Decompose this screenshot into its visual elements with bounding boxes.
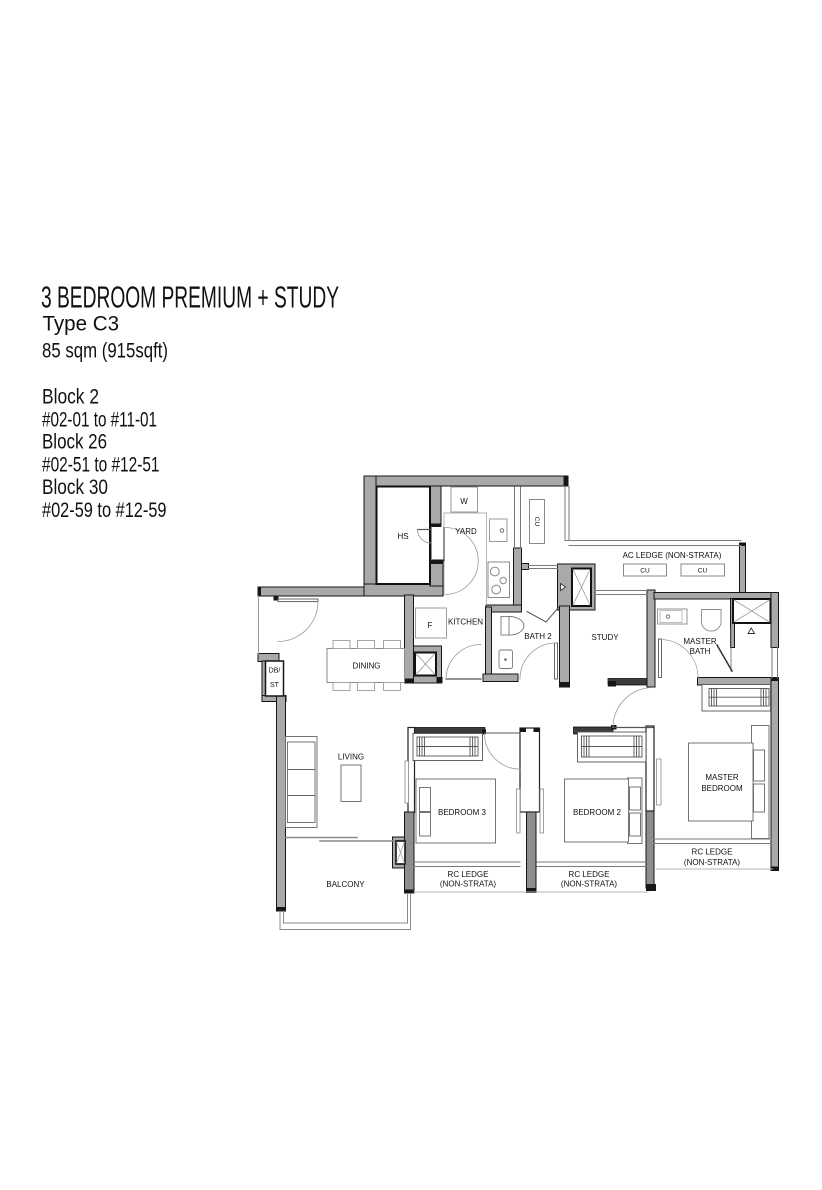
svg-text:#02-59 to #12-59: #02-59 to #12-59: [42, 499, 167, 522]
svg-text:CU: CU: [640, 568, 650, 575]
svg-text:MASTER: MASTER: [705, 773, 739, 782]
svg-text:ST: ST: [270, 682, 280, 689]
svg-text:#02-01 to #11-01: #02-01 to #11-01: [42, 409, 157, 432]
svg-text:AC LEDGE (NON-STRATA): AC LEDGE (NON-STRATA): [623, 551, 722, 560]
svg-text:Block 2: Block 2: [42, 386, 99, 409]
svg-text:Block 30: Block 30: [42, 476, 108, 499]
svg-text:BATH: BATH: [690, 647, 711, 656]
svg-text:3 BEDROOM PREMIUM + STUDY: 3 BEDROOM PREMIUM + STUDY: [41, 280, 339, 315]
svg-text:KITCHEN: KITCHEN: [448, 618, 483, 627]
svg-text:85 sqm (915sqft): 85 sqm (915sqft): [42, 340, 168, 363]
svg-text:(NON-STRATA): (NON-STRATA): [684, 858, 740, 867]
svg-text:CU: CU: [698, 568, 708, 575]
svg-text:CU: CU: [533, 517, 540, 527]
svg-text:W: W: [460, 497, 468, 506]
svg-text:#02-51 to #12-51: #02-51 to #12-51: [42, 454, 160, 477]
svg-text:Type C3: Type C3: [43, 313, 120, 336]
svg-text:MASTER: MASTER: [683, 637, 717, 646]
svg-text:RC LEDGE: RC LEDGE: [569, 870, 610, 879]
svg-text:BEDROOM 3: BEDROOM 3: [438, 808, 487, 817]
svg-text:BEDROOM 2: BEDROOM 2: [573, 808, 622, 817]
svg-text:HS: HS: [397, 532, 408, 541]
svg-text:BALCONY: BALCONY: [326, 880, 365, 889]
svg-text:RC LEDGE: RC LEDGE: [448, 870, 489, 879]
svg-text:BEDROOM: BEDROOM: [701, 784, 743, 793]
svg-text:BATH 2: BATH 2: [524, 632, 552, 641]
svg-text:Block 26: Block 26: [42, 431, 107, 454]
svg-text:RC LEDGE: RC LEDGE: [692, 848, 733, 857]
svg-text:F: F: [428, 621, 433, 630]
svg-text:YARD: YARD: [455, 527, 477, 536]
svg-text:DINING: DINING: [353, 662, 381, 671]
svg-text:DB/: DB/: [269, 668, 281, 675]
svg-text:STUDY: STUDY: [591, 633, 619, 642]
svg-text:LIVING: LIVING: [338, 753, 364, 762]
svg-text:(NON-STRATA): (NON-STRATA): [440, 880, 496, 889]
svg-text:(NON-STRATA): (NON-STRATA): [561, 880, 617, 889]
